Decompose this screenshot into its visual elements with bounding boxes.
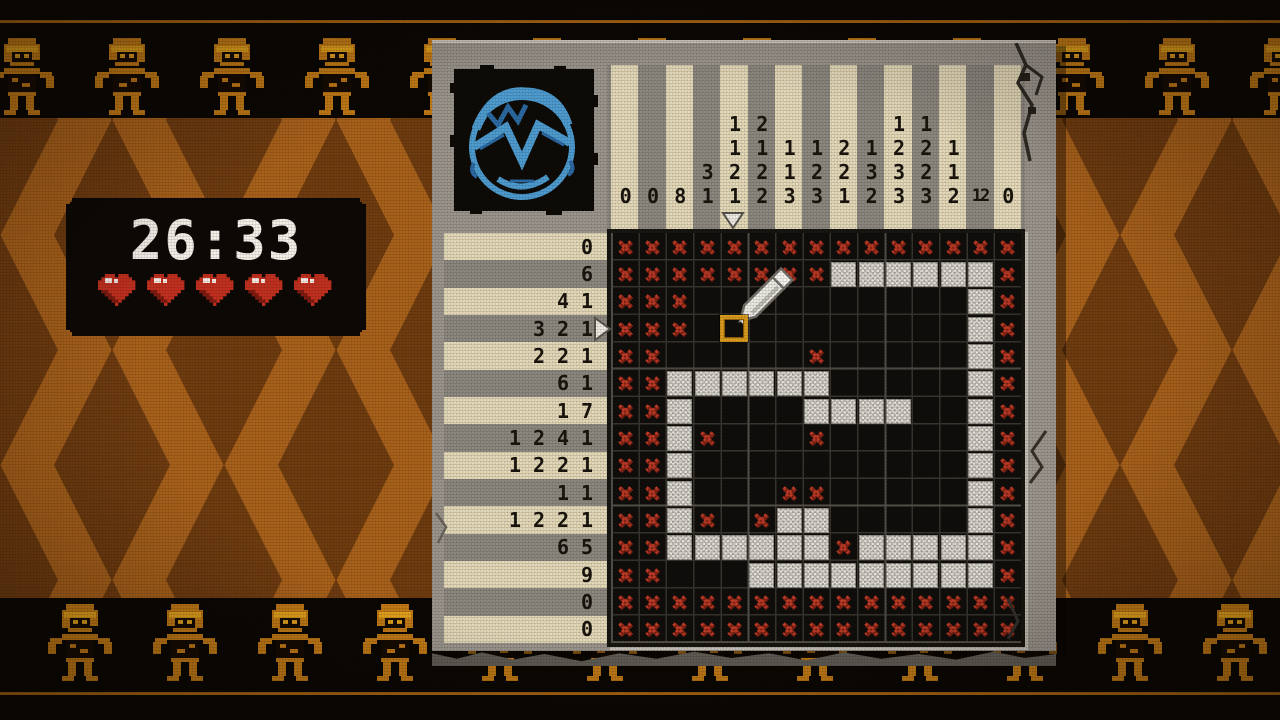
grid-cell-filled[interactable]: [968, 481, 993, 506]
grid-cell-xmark[interactable]: [995, 508, 1020, 533]
hint-number: 1: [502, 426, 526, 450]
grid-cell-xmark[interactable]: [995, 590, 1020, 615]
grid-cell-filled[interactable]: [777, 508, 802, 533]
dancer-sprite-icon: [1145, 36, 1209, 116]
column-hint-group: 113: [775, 65, 802, 208]
grid-cell-empty[interactable]: [859, 453, 884, 478]
grid-cell-empty[interactable]: [667, 563, 692, 588]
grid-cell-xmark[interactable]: [640, 590, 665, 615]
grid-cell-empty[interactable]: [941, 289, 966, 314]
grid-cell-empty[interactable]: [913, 289, 938, 314]
row-hint-group: 0: [444, 233, 598, 260]
hint-number: 2: [749, 184, 773, 208]
grid-cell-filled[interactable]: [968, 317, 993, 342]
grid-cell-empty[interactable]: [722, 563, 747, 588]
grid-cell-xmark[interactable]: [613, 371, 638, 396]
grid-cell-xmark[interactable]: [640, 289, 665, 314]
hint-number: 2: [526, 344, 550, 368]
grid-cell-empty[interactable]: [667, 344, 692, 369]
hint-number: 5: [574, 535, 598, 559]
grid-cell-empty[interactable]: [749, 453, 774, 478]
grid-cell-empty[interactable]: [749, 426, 774, 451]
grid-cell-xmark[interactable]: [640, 426, 665, 451]
grid-cell-filled[interactable]: [941, 563, 966, 588]
grid-cell-empty[interactable]: [941, 508, 966, 533]
grid-cell-filled[interactable]: [859, 535, 884, 560]
grid-cell-xmark[interactable]: [640, 235, 665, 260]
hint-number: 1: [574, 481, 598, 505]
grid-cell-xmark[interactable]: [968, 590, 993, 615]
grid-cell-xmark[interactable]: [804, 344, 829, 369]
grid-cell-empty[interactable]: [913, 399, 938, 424]
grid-cell-empty[interactable]: [913, 481, 938, 506]
grid-cell-filled[interactable]: [749, 535, 774, 560]
grid-cell-xmark[interactable]: [667, 289, 692, 314]
hint-number: 1: [722, 112, 746, 136]
grid-cell-empty[interactable]: [941, 371, 966, 396]
hint-number: 3: [886, 160, 910, 184]
grid-cell-filled[interactable]: [777, 563, 802, 588]
hint-number: 1: [574, 453, 598, 477]
grid-cell-xmark[interactable]: [777, 617, 802, 642]
timer-value: 26:33: [70, 208, 362, 274]
grid-cell-xmark[interactable]: [804, 426, 829, 451]
grid-cell-xmark[interactable]: [613, 344, 638, 369]
grid-cell-xmark[interactable]: [722, 617, 747, 642]
hint-number: 2: [749, 160, 773, 184]
hint-number: 1: [574, 371, 598, 395]
grid-cell-xmark[interactable]: [613, 426, 638, 451]
grid-cell-filled[interactable]: [886, 563, 911, 588]
avatar-icon: [450, 65, 598, 215]
hint-number: 2: [913, 160, 937, 184]
row-hint-group: 1241: [444, 424, 598, 451]
grid-cell-empty[interactable]: [831, 453, 856, 478]
hint-number: 1: [749, 136, 773, 160]
grid-cell-xmark[interactable]: [695, 235, 720, 260]
grid-cell-empty[interactable]: [886, 371, 911, 396]
grid-cell-xmark[interactable]: [695, 262, 720, 287]
grid-cell-xmark[interactable]: [995, 235, 1020, 260]
heart-icon: [294, 274, 334, 308]
grid-cell-xmark[interactable]: [667, 617, 692, 642]
grid-cell-xmark[interactable]: [613, 235, 638, 260]
grid-cell-xmark[interactable]: [640, 371, 665, 396]
grid-cell-xmark[interactable]: [995, 481, 1020, 506]
grid-cell-filled[interactable]: [777, 535, 802, 560]
grid-cell-empty[interactable]: [749, 399, 774, 424]
grid-cell-empty[interactable]: [831, 508, 856, 533]
grid-cell-filled[interactable]: [804, 371, 829, 396]
grid-cell-xmark[interactable]: [749, 617, 774, 642]
grid-cell-empty[interactable]: [722, 399, 747, 424]
grid-cell-xmark[interactable]: [613, 508, 638, 533]
grid-cell-filled[interactable]: [804, 399, 829, 424]
grid-cell-empty[interactable]: [941, 481, 966, 506]
hint-number: 1: [502, 508, 526, 532]
grid-cell-filled[interactable]: [968, 453, 993, 478]
grid-cell-xmark[interactable]: [941, 590, 966, 615]
grid-cell-xmark[interactable]: [722, 590, 747, 615]
heart-icon: [147, 274, 187, 308]
grid-cell-xmark[interactable]: [995, 453, 1020, 478]
grid-cell-empty[interactable]: [859, 508, 884, 533]
grid-cell-xmark[interactable]: [995, 371, 1020, 396]
grid-cell-empty[interactable]: [886, 481, 911, 506]
grid-cell-xmark[interactable]: [995, 426, 1020, 451]
grid-cell-empty[interactable]: [722, 508, 747, 533]
column-hint-group: 2122: [748, 65, 775, 208]
grid-cell-empty[interactable]: [695, 563, 720, 588]
game-screen: 26:33 00831112121221131232: [0, 0, 1280, 720]
hint-number: 2: [941, 184, 965, 208]
column-hint-group: 0: [638, 65, 665, 208]
grid-cell-filled[interactable]: [913, 262, 938, 287]
timer-panel: 26:33: [70, 202, 362, 332]
dancer-sprite-icon: [1098, 602, 1162, 682]
grid-cell-empty[interactable]: [831, 344, 856, 369]
grid-cell-xmark[interactable]: [886, 590, 911, 615]
dancer-sprite-icon: [200, 36, 264, 116]
row-hint-group: 1221: [444, 452, 598, 479]
grid-cell-empty[interactable]: [913, 426, 938, 451]
grid-cell-filled[interactable]: [667, 399, 692, 424]
grid-cell-empty[interactable]: [695, 344, 720, 369]
row-hint-group: 6: [444, 260, 598, 287]
column-hint-group: 1121: [720, 65, 747, 208]
hint-number: 2: [722, 160, 746, 184]
grid-cell-empty[interactable]: [831, 371, 856, 396]
grid-cell-xmark[interactable]: [749, 590, 774, 615]
grid-cell-filled[interactable]: [667, 535, 692, 560]
diamond-shape: [1174, 349, 1280, 581]
lives-hearts-row: [70, 274, 362, 308]
grid-cell-filled[interactable]: [667, 453, 692, 478]
grid-cell-xmark[interactable]: [667, 590, 692, 615]
grid-cell-empty[interactable]: [886, 289, 911, 314]
grid-cell-filled[interactable]: [968, 344, 993, 369]
grid-cell-filled[interactable]: [968, 563, 993, 588]
grid-cell-xmark[interactable]: [777, 590, 802, 615]
grid-cell-xmark[interactable]: [995, 563, 1020, 588]
grid-cell-empty[interactable]: [941, 426, 966, 451]
hint-number: 6: [574, 262, 598, 286]
row-hint-group: 61: [444, 370, 598, 397]
grid-cell-xmark[interactable]: [613, 563, 638, 588]
hint-number: 2: [550, 317, 574, 341]
grid-cell-xmark[interactable]: [831, 617, 856, 642]
grid-cell-xmark[interactable]: [886, 617, 911, 642]
hint-number: 1: [941, 136, 965, 160]
grid-cell-xmark[interactable]: [695, 508, 720, 533]
grid-cell-xmark[interactable]: [613, 289, 638, 314]
hint-number: 4: [550, 426, 574, 450]
hint-number: 2: [526, 508, 550, 532]
grid-cell-xmark[interactable]: [695, 590, 720, 615]
grid-cell-empty[interactable]: [886, 344, 911, 369]
grid-cell-xmark[interactable]: [941, 235, 966, 260]
grid-cell-filled[interactable]: [667, 371, 692, 396]
grid-cell-filled[interactable]: [667, 481, 692, 506]
hint-number: 0: [574, 617, 598, 641]
grid-cell-xmark[interactable]: [613, 481, 638, 506]
grid-cell-filled[interactable]: [749, 563, 774, 588]
grid-cell-xmark[interactable]: [640, 453, 665, 478]
grid-cell-xmark[interactable]: [640, 563, 665, 588]
hint-number: 3: [859, 160, 883, 184]
row-hint-group: 321: [444, 315, 598, 342]
hint-number: 1: [722, 136, 746, 160]
grid-cell-xmark[interactable]: [640, 617, 665, 642]
grid-cell-empty[interactable]: [831, 289, 856, 314]
grid-cell-filled[interactable]: [941, 535, 966, 560]
grid-cell-xmark[interactable]: [913, 235, 938, 260]
grid-cell-empty[interactable]: [913, 344, 938, 369]
grid-cell-empty[interactable]: [913, 508, 938, 533]
grid-cell-filled[interactable]: [913, 563, 938, 588]
grid-cell-empty[interactable]: [695, 289, 720, 314]
grid-cell-filled[interactable]: [886, 262, 911, 287]
grid-cell-filled[interactable]: [722, 371, 747, 396]
grid-cell-xmark[interactable]: [941, 617, 966, 642]
grid-cell-xmark[interactable]: [995, 289, 1020, 314]
grid-cell-xmark[interactable]: [995, 317, 1020, 342]
grid-cell-empty[interactable]: [777, 344, 802, 369]
row-hint-group: 221: [444, 342, 598, 369]
grid-cell-empty[interactable]: [722, 453, 747, 478]
grid-cell-filled[interactable]: [968, 289, 993, 314]
grid-cell-filled[interactable]: [968, 399, 993, 424]
row-hint-group: 1221: [444, 506, 598, 533]
grid-cell-xmark[interactable]: [667, 317, 692, 342]
grid-cell-filled[interactable]: [777, 371, 802, 396]
grid-cell-empty[interactable]: [913, 317, 938, 342]
grid-cell-filled[interactable]: [804, 563, 829, 588]
heart-icon: [245, 274, 285, 308]
grid-cell-empty[interactable]: [777, 453, 802, 478]
hint-number: 1: [574, 426, 598, 450]
grid-cell-filled[interactable]: [749, 371, 774, 396]
grid-cell-empty[interactable]: [859, 317, 884, 342]
grid-cell-xmark[interactable]: [667, 235, 692, 260]
hint-number: 3: [804, 184, 828, 208]
grid-cell-filled[interactable]: [968, 508, 993, 533]
grid-cell-filled[interactable]: [695, 535, 720, 560]
grid-cell-empty[interactable]: [859, 371, 884, 396]
grid-cell-xmark[interactable]: [831, 235, 856, 260]
grid-cell-xmark[interactable]: [913, 590, 938, 615]
column-hint-group: 12: [966, 65, 993, 208]
column-hint-group: 0: [994, 65, 1021, 208]
grid-cell-empty[interactable]: [722, 426, 747, 451]
hint-number: 1: [574, 344, 598, 368]
grid-cell-empty[interactable]: [941, 317, 966, 342]
hint-number: 3: [526, 317, 550, 341]
grid-cell-xmark[interactable]: [695, 617, 720, 642]
hint-number: 6: [550, 535, 574, 559]
grid-cell-xmark[interactable]: [831, 590, 856, 615]
hint-number: 3: [695, 160, 719, 184]
hint-number: 2: [526, 426, 550, 450]
grid-cell-empty[interactable]: [695, 481, 720, 506]
grid-cell-filled[interactable]: [886, 535, 911, 560]
hint-number: 6: [550, 371, 574, 395]
column-arrow-icon: [720, 211, 746, 230]
grid-cell-filled[interactable]: [667, 426, 692, 451]
grid-cell-xmark[interactable]: [804, 617, 829, 642]
grid-cell-filled[interactable]: [804, 508, 829, 533]
grid-cell-xmark[interactable]: [613, 590, 638, 615]
grid-cell-xmark[interactable]: [640, 399, 665, 424]
hint-number: 1: [913, 112, 937, 136]
border-line: [0, 20, 1280, 23]
grid-cell-filled[interactable]: [886, 399, 911, 424]
grid-cell-xmark[interactable]: [831, 535, 856, 560]
hint-number: 2: [550, 344, 574, 368]
grid-cell-xmark[interactable]: [995, 262, 1020, 287]
grid-cell-filled[interactable]: [968, 426, 993, 451]
diamond-shape: [0, 234, 58, 466]
grid-cell-xmark[interactable]: [613, 535, 638, 560]
grid-cell-empty[interactable]: [722, 344, 747, 369]
grid-cell-xmark[interactable]: [859, 235, 884, 260]
grid-cell-empty[interactable]: [913, 453, 938, 478]
grid-cell-empty[interactable]: [777, 399, 802, 424]
row-hint-group: 11: [444, 479, 598, 506]
grid-cell-empty[interactable]: [941, 453, 966, 478]
grid-cell-empty[interactable]: [886, 317, 911, 342]
grid-cell-xmark[interactable]: [859, 617, 884, 642]
grid-cell-xmark[interactable]: [995, 399, 1020, 424]
grid-cell-filled[interactable]: [859, 563, 884, 588]
grid-cell-filled[interactable]: [941, 262, 966, 287]
grid-cell-filled[interactable]: [913, 535, 938, 560]
grid-cell-xmark[interactable]: [886, 235, 911, 260]
grid-cell-xmark[interactable]: [613, 262, 638, 287]
column-hint-group: 8: [666, 65, 693, 208]
grid-cell-empty[interactable]: [722, 481, 747, 506]
grid-cell-filled[interactable]: [804, 535, 829, 560]
hint-number: 1: [722, 184, 746, 208]
grid-cell-xmark[interactable]: [995, 344, 1020, 369]
grid-cell-empty[interactable]: [913, 371, 938, 396]
grid-cell-empty[interactable]: [831, 317, 856, 342]
grid-cell-filled[interactable]: [831, 399, 856, 424]
grid-cell-filled[interactable]: [968, 535, 993, 560]
grid-cell-empty[interactable]: [859, 289, 884, 314]
row-hint-group: 0: [444, 616, 598, 643]
grid-cell-filled[interactable]: [722, 535, 747, 560]
hint-number: 0: [995, 184, 1019, 208]
grid-cell-empty[interactable]: [831, 481, 856, 506]
column-hint-group: 0: [611, 65, 638, 208]
grid-cell-empty[interactable]: [777, 426, 802, 451]
diamond-shape: [278, 349, 394, 581]
hint-number: 1: [550, 481, 574, 505]
column-hint-group: 112: [939, 65, 966, 208]
grid-cell-filled[interactable]: [968, 371, 993, 396]
grid-cell-empty[interactable]: [749, 481, 774, 506]
hint-number: 2: [550, 453, 574, 477]
grid-cell-xmark[interactable]: [995, 535, 1020, 560]
grid-cell-xmark[interactable]: [667, 262, 692, 287]
row-hint-group: 65: [444, 534, 598, 561]
column-hint-group: 1223: [912, 65, 939, 208]
grid-cell-xmark[interactable]: [777, 481, 802, 506]
grid-cell-filled[interactable]: [831, 262, 856, 287]
grid-cell-empty[interactable]: [695, 453, 720, 478]
grid-cell-xmark[interactable]: [613, 317, 638, 342]
grid-cell-xmark[interactable]: [640, 481, 665, 506]
grid-cell-xmark[interactable]: [968, 617, 993, 642]
grid-cell-filled[interactable]: [667, 508, 692, 533]
hint-number: 8: [667, 184, 691, 208]
grid-cell-xmark[interactable]: [859, 590, 884, 615]
dancer-sprite-icon: [153, 602, 217, 682]
column-hint-group: 132: [857, 65, 884, 208]
grid-cell-empty[interactable]: [886, 426, 911, 451]
hint-number: 1: [804, 136, 828, 160]
grid-cell-empty[interactable]: [859, 481, 884, 506]
dancer-sprite-icon: [305, 36, 369, 116]
hint-number: 0: [613, 184, 637, 208]
grid-cell-xmark[interactable]: [613, 453, 638, 478]
hint-number: 3: [913, 184, 937, 208]
grid-cell-empty[interactable]: [804, 453, 829, 478]
hint-number: 1: [831, 184, 855, 208]
grid-cell-xmark[interactable]: [613, 617, 638, 642]
grid-cell-xmark[interactable]: [640, 262, 665, 287]
grid-cell-xmark[interactable]: [640, 344, 665, 369]
grid-cell-empty[interactable]: [695, 317, 720, 342]
grid-cell-empty[interactable]: [859, 426, 884, 451]
grid-cell-xmark[interactable]: [804, 590, 829, 615]
grid-cell-empty[interactable]: [886, 508, 911, 533]
grid-cell-xmark[interactable]: [968, 235, 993, 260]
grid-cell-filled[interactable]: [831, 563, 856, 588]
grid-cell-xmark[interactable]: [804, 481, 829, 506]
hint-number: 1: [886, 112, 910, 136]
grid-cell-xmark[interactable]: [695, 426, 720, 451]
dancer-sprite-icon: [48, 602, 112, 682]
grid-cell-xmark[interactable]: [640, 508, 665, 533]
grid-cell-empty[interactable]: [695, 399, 720, 424]
grid-cell-filled[interactable]: [968, 262, 993, 287]
grid-cell-xmark[interactable]: [749, 508, 774, 533]
grid-cell-xmark[interactable]: [640, 317, 665, 342]
grid-cell-empty[interactable]: [941, 344, 966, 369]
grid-cell-filled[interactable]: [695, 371, 720, 396]
grid-cell-filled[interactable]: [859, 399, 884, 424]
grid-cell-xmark[interactable]: [640, 535, 665, 560]
row-hint-group: 9: [444, 561, 598, 588]
grid-cell-xmark[interactable]: [995, 617, 1020, 642]
grid-cell-filled[interactable]: [859, 262, 884, 287]
grid-cell-empty[interactable]: [749, 344, 774, 369]
grid-cell-empty[interactable]: [831, 426, 856, 451]
hint-number: 1: [502, 453, 526, 477]
hint-number: 3: [777, 184, 801, 208]
hint-number: 1: [777, 136, 801, 160]
grid-cell-empty[interactable]: [886, 453, 911, 478]
grid-cell-xmark[interactable]: [913, 617, 938, 642]
dancer-sprite-icon: [1250, 36, 1280, 116]
row-hint-group: 0: [444, 588, 598, 615]
grid-cell-empty[interactable]: [941, 399, 966, 424]
grid-cell-xmark[interactable]: [613, 399, 638, 424]
hint-number: 1: [859, 136, 883, 160]
grid-cell-empty[interactable]: [859, 344, 884, 369]
